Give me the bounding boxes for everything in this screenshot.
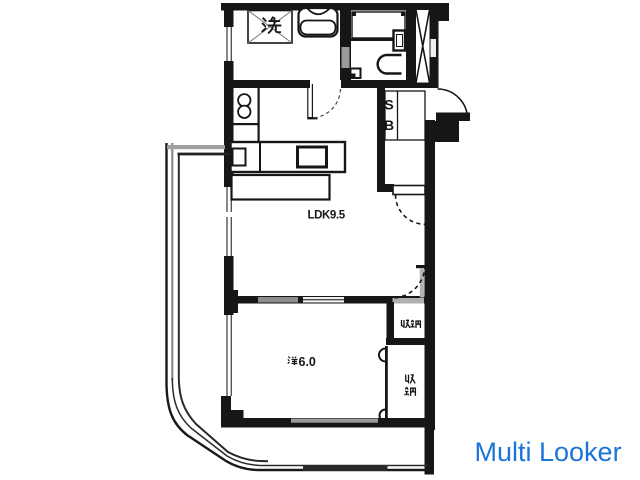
svg-text:S: S bbox=[384, 97, 393, 113]
svg-text:B: B bbox=[384, 117, 394, 133]
svg-text:Multi Looker: Multi Looker bbox=[475, 437, 622, 467]
svg-text:6.0: 6.0 bbox=[299, 355, 316, 369]
svg-text:LDK9.5: LDK9.5 bbox=[308, 210, 346, 222]
